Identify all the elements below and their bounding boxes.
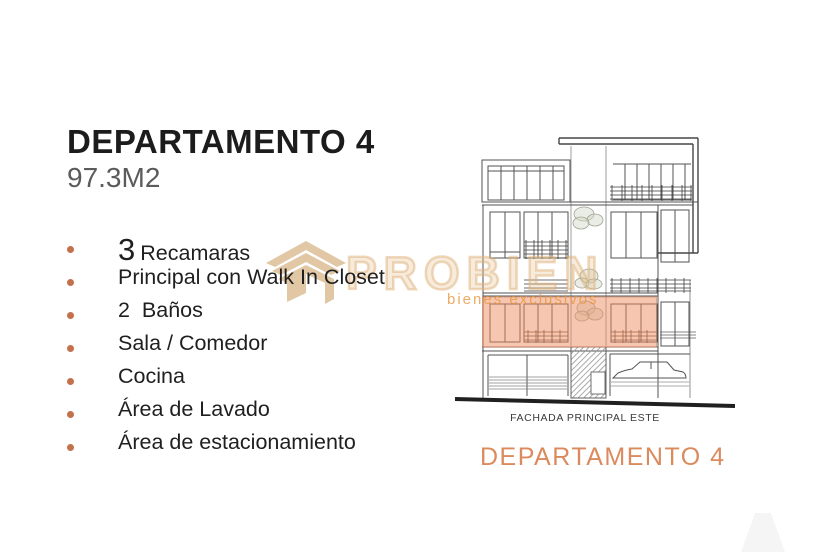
apartment-area: 97.3M2 xyxy=(67,162,160,194)
feature-label: Área de Lavado xyxy=(118,399,270,421)
feature-item: Sala / Comedor xyxy=(66,333,385,366)
bullet-icon xyxy=(67,444,74,451)
probien-tagline: bienes exclusivos xyxy=(447,292,599,307)
feature-item: Cocina xyxy=(66,366,385,399)
bullet-icon xyxy=(67,279,74,286)
feature-label: Cocina xyxy=(118,366,185,388)
feature-item: Área de Lavado xyxy=(66,399,385,432)
elevation-caption: FACHADA PRINCIPAL ESTE xyxy=(460,412,710,424)
apartment-label: DEPARTAMENTO 4 xyxy=(480,444,726,472)
feature-label: Sala / Comedor xyxy=(118,333,267,355)
feature-item: Área de estacionamiento xyxy=(66,432,385,465)
bullet-icon xyxy=(67,345,74,352)
feature-number: 3 xyxy=(118,234,135,265)
page-title: DEPARTAMENTO 4 xyxy=(67,124,375,160)
feature-list: 3 Recamaras Principal con Walk In Closet… xyxy=(66,234,385,465)
feature-item: 2 Baños xyxy=(66,300,385,333)
feature-label: Área de estacionamiento xyxy=(118,432,356,454)
corner-watermark-mark xyxy=(741,513,785,552)
slide: DEPARTAMENTO 4 97.3M2 3 Recamaras Princi… xyxy=(0,0,828,552)
feature-item: Principal con Walk In Closet xyxy=(66,267,385,300)
feature-label: 2 Baños xyxy=(118,300,203,322)
feature-label: Recamaras xyxy=(140,243,250,265)
bullet-icon xyxy=(67,246,74,253)
bullet-icon xyxy=(67,411,74,418)
bullet-icon xyxy=(67,312,74,319)
bullet-icon xyxy=(67,378,74,385)
feature-item: 3 Recamaras xyxy=(66,234,385,267)
feature-label: Principal con Walk In Closet xyxy=(118,267,385,289)
